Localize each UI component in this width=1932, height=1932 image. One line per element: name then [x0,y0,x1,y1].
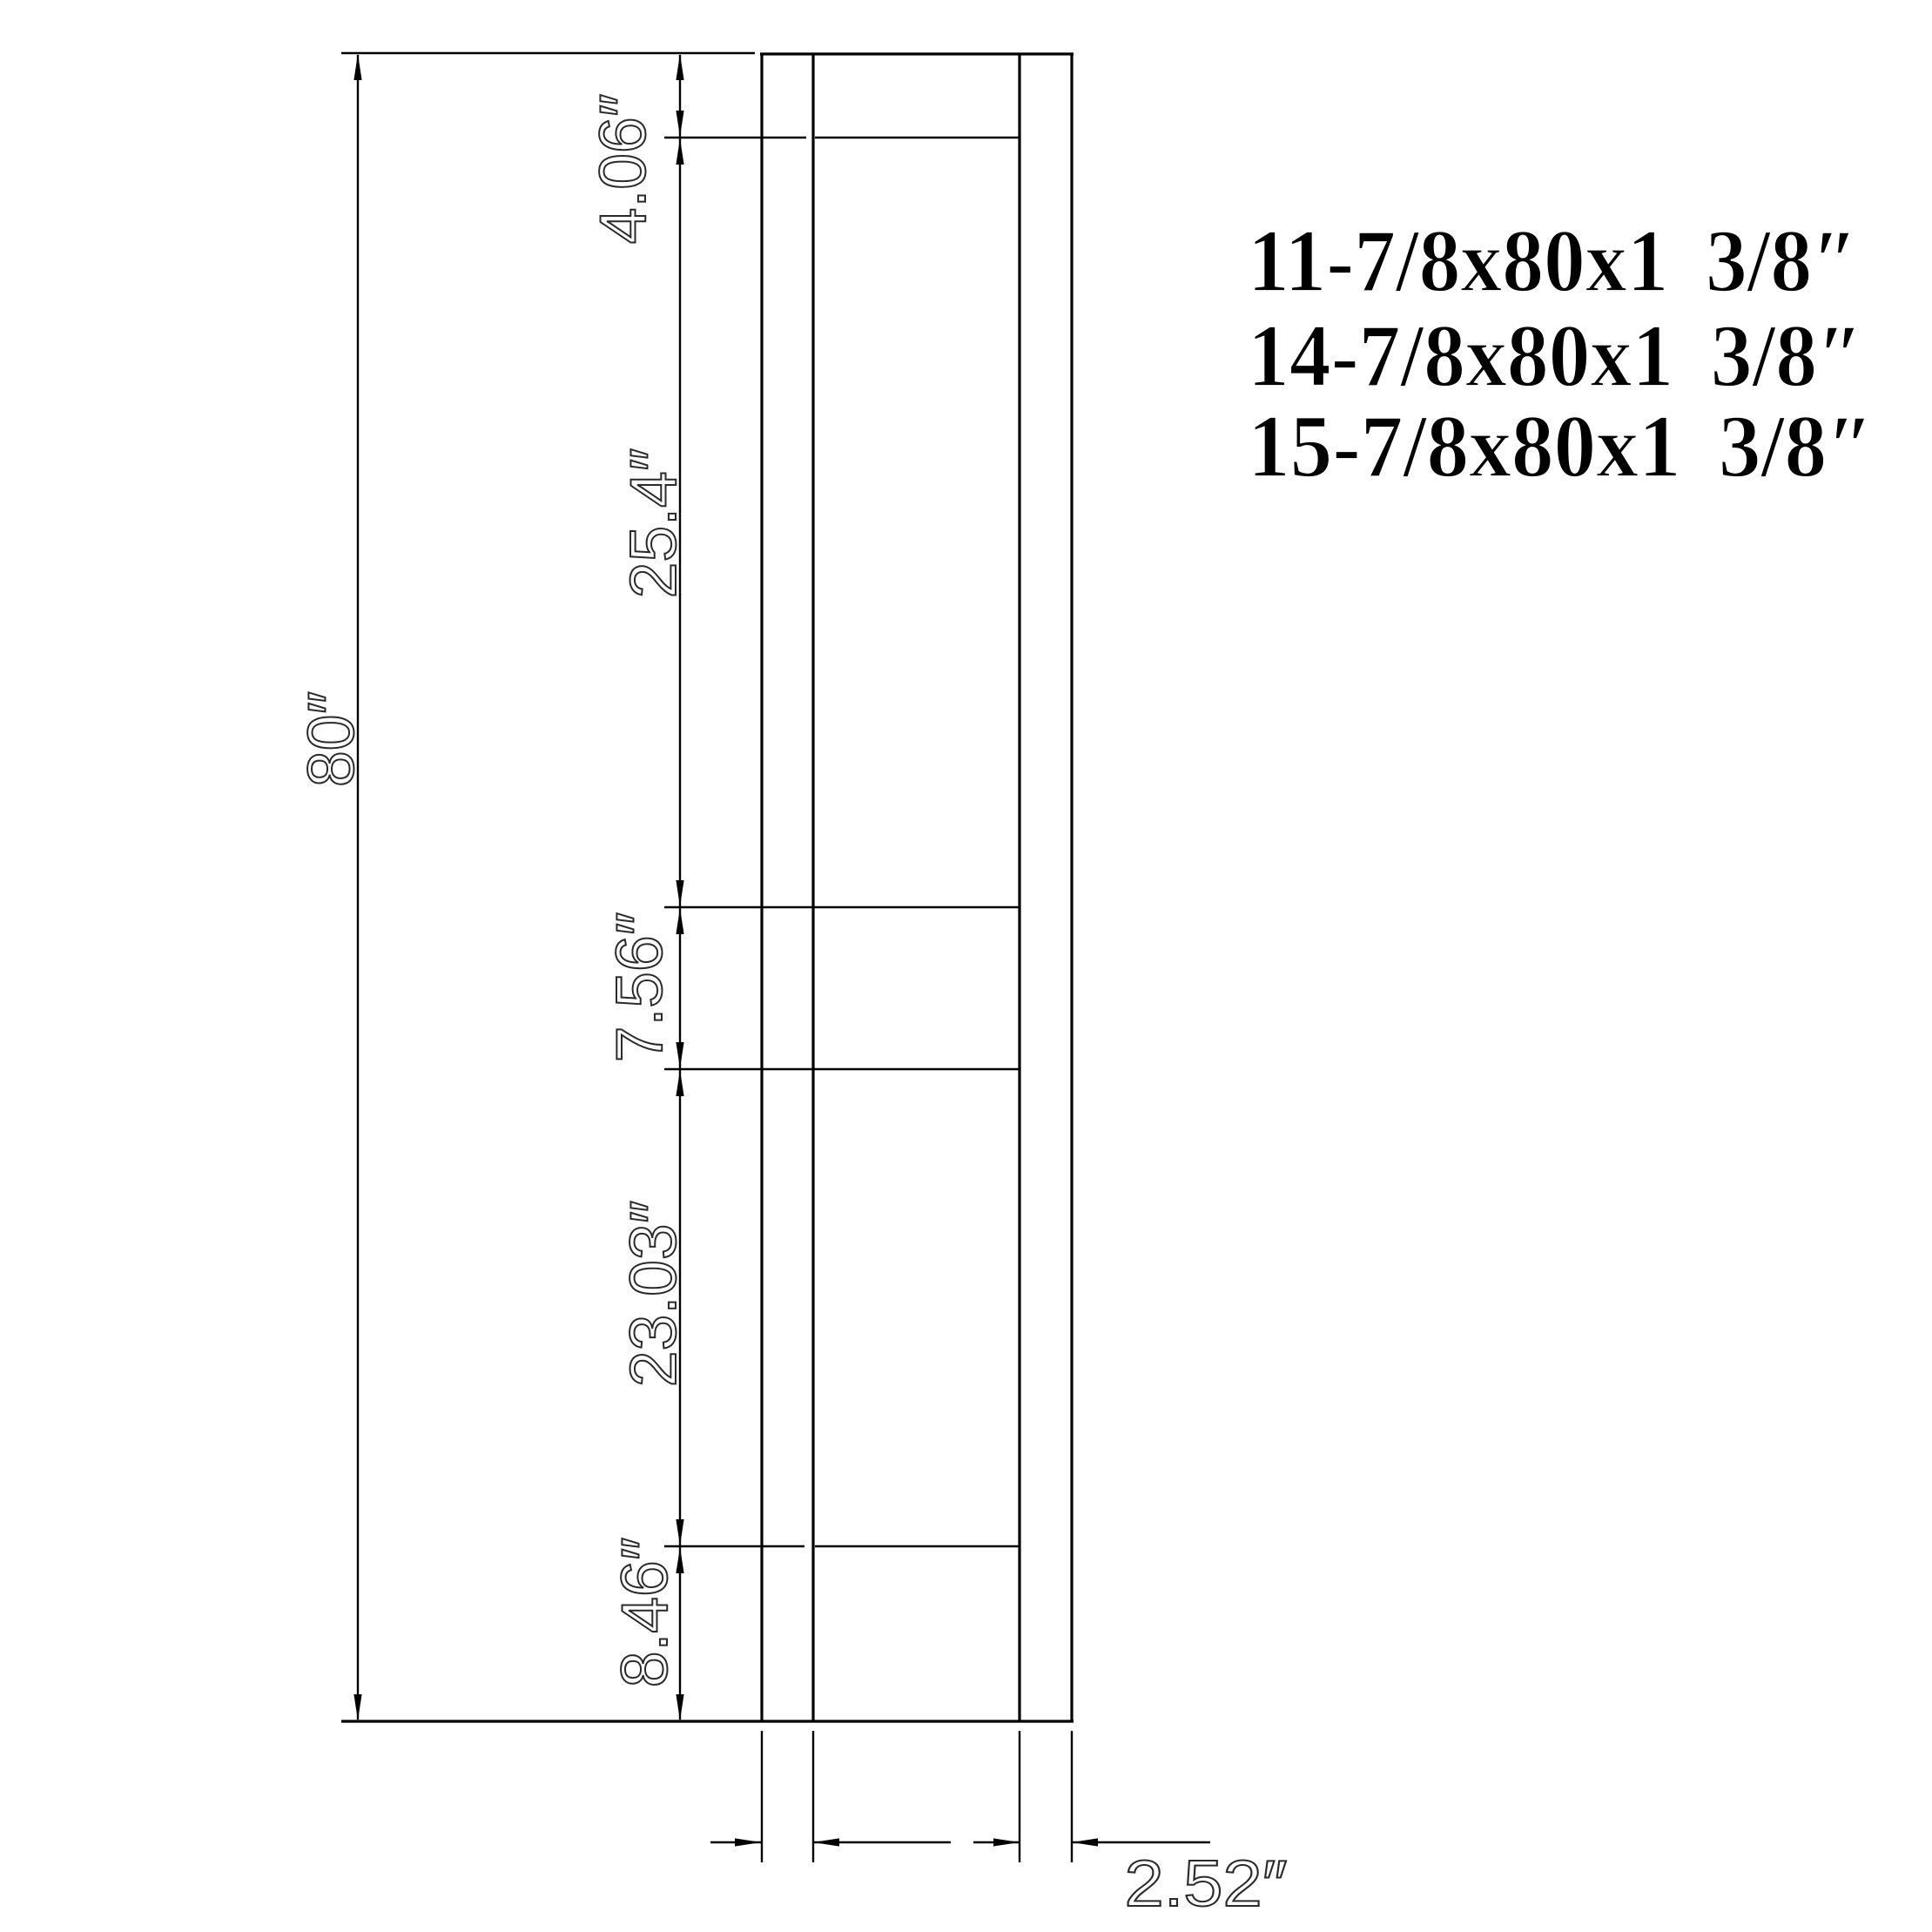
svg-text:11-7/8x80x1 3/8″: 11-7/8x80x1 3/8″ [1248,212,1858,311]
svg-text:4.06″: 4.06″ [586,94,659,245]
svg-text:8.46″: 8.46″ [608,1538,681,1688]
svg-text:2.52″: 2.52″ [1125,1847,1288,1920]
svg-text:7.56″: 7.56″ [602,912,676,1063]
svg-text:23.03″: 23.03″ [616,1201,690,1387]
svg-text:14-7/8x80x1 3/8″: 14-7/8x80x1 3/8″ [1248,306,1863,406]
svg-text:80″: 80″ [294,691,367,787]
svg-text:15-7/8x80x1 3/8″: 15-7/8x80x1 3/8″ [1248,397,1874,496]
svg-text:25.4″: 25.4″ [616,448,690,599]
